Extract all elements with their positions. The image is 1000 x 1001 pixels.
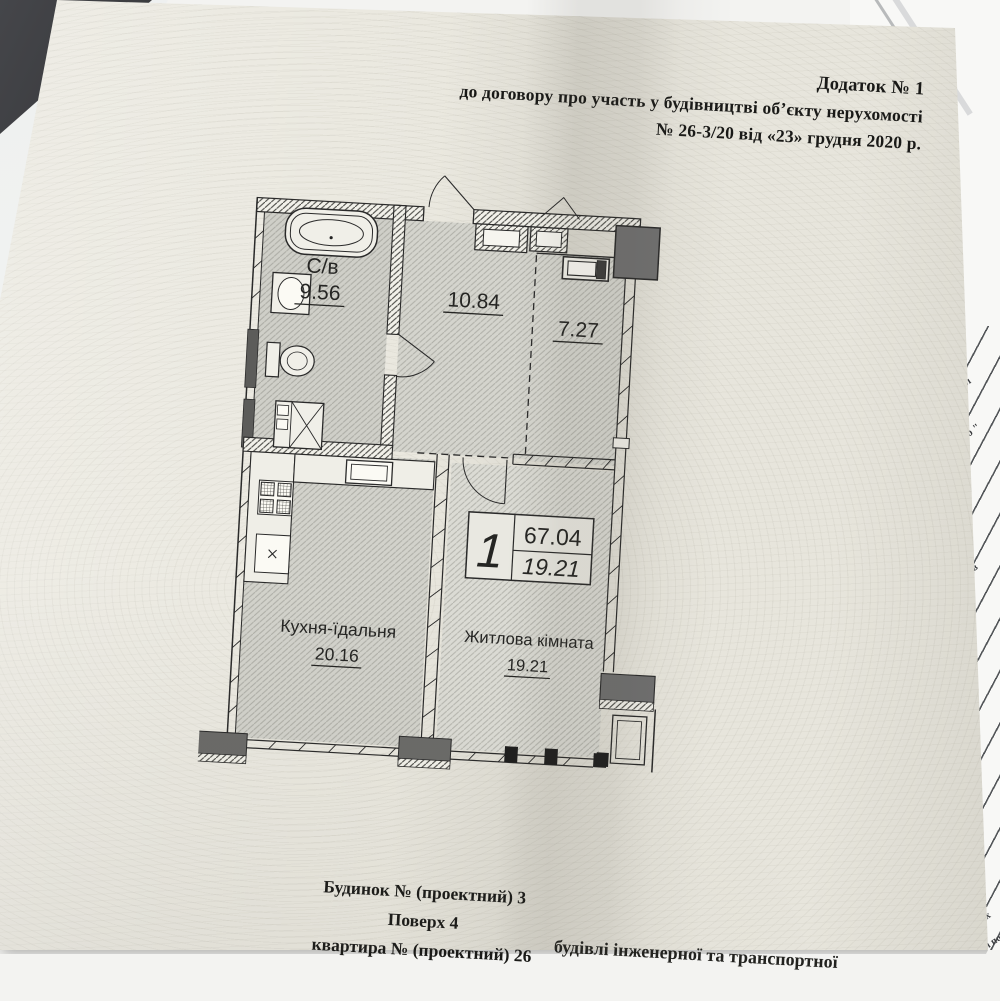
wardrobe-area: 7.27 [557,317,599,342]
total-area: 67.04 [523,522,582,551]
entrance-door-leaf [443,176,476,210]
structural-column [613,226,660,280]
bathroom-label: С/в [306,254,339,279]
document-header: Додаток № 1 до договору про участь у буд… [457,51,925,158]
bathtub-icon [284,207,378,258]
oven-icon [345,460,392,486]
column-mark [504,746,518,763]
apartment-summary-box: 1 67.04 19.21 [465,512,593,585]
floor-plan-drawing: 1 67.04 19.21 С/в 9.56 10.84 7.27 Кухня-… [197,156,690,793]
balcony [596,673,657,772]
entrance-door-arc [429,175,445,208]
living-area: 19.21 [522,553,581,582]
washing-machine-icon [273,401,323,450]
balcony-railing [652,710,656,773]
kitchen-area: 20.16 [314,643,359,665]
stove-icon [258,480,294,516]
room-count: 1 [475,524,505,578]
column-mark [544,748,558,765]
living-room-area: 19.21 [506,656,548,676]
kitchen-sink-icon [254,534,290,574]
document-footer: Будинок № (проектний) 3 Поверх 4 квартир… [211,866,635,976]
document-content: Додаток № 1 до договору про участь у буд… [0,0,999,1001]
floor-plan: 1 67.04 19.21 С/в 9.56 10.84 7.27 Кухня-… [197,156,690,793]
hall-area: 10.84 [447,288,501,314]
bathroom-area: 9.56 [299,280,341,305]
